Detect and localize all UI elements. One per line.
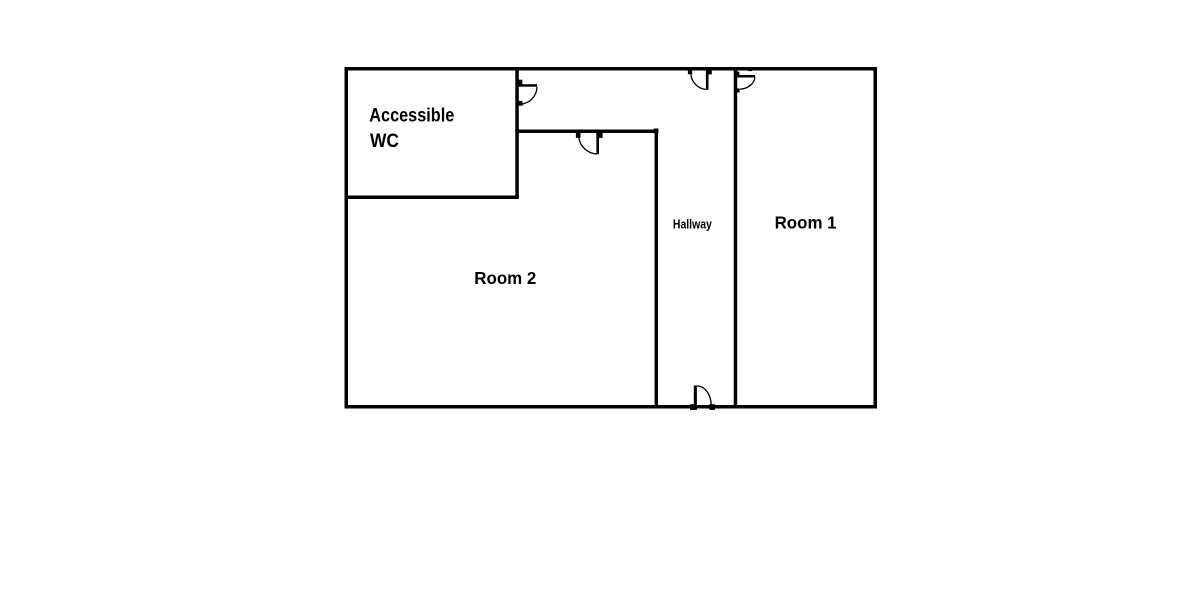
svg-text:Room 2: Room 2 (474, 268, 536, 288)
svg-text:Room 1: Room 1 (775, 213, 837, 233)
svg-text:Hallway: Hallway (673, 218, 712, 232)
svg-text:Accessible: Accessible (369, 106, 454, 127)
svg-text:WC: WC (370, 131, 399, 152)
